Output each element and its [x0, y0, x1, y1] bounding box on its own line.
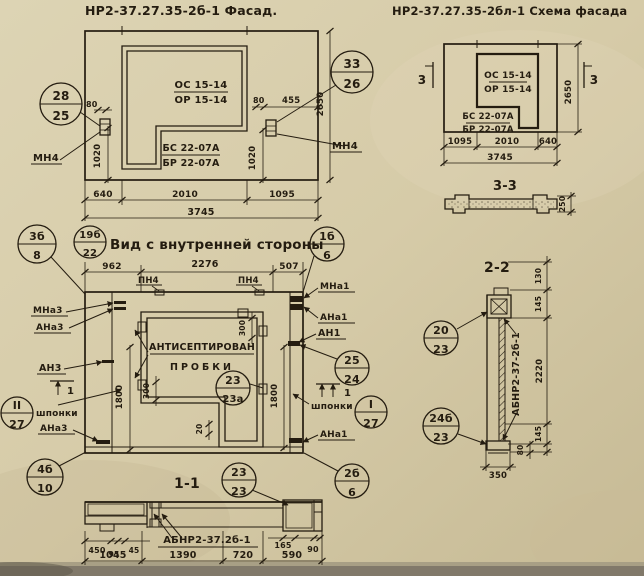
dim-2276: 2276 — [191, 259, 218, 270]
section-mark-1: 1 — [344, 388, 351, 399]
section-mark-3: 3 — [590, 73, 599, 87]
label-text: АНа3 — [40, 424, 68, 434]
dim-130: 130 — [534, 268, 543, 284]
section-mark-1: 1 — [67, 386, 74, 397]
facade-title: НР2-37.27.35-2б-1 Фасад. — [85, 3, 277, 18]
dim-1800-right: 1800 — [270, 384, 280, 408]
dim-962: 962 — [102, 262, 121, 272]
note-line1: АНТИСЕПТИРОВАН — [149, 342, 255, 353]
dim-2010: 2010 — [495, 137, 519, 147]
scheme-title: НР2-37.27.35-2бл-1 Схема фасада — [392, 4, 627, 18]
label-or: ОР 15-14 — [484, 85, 532, 95]
dim-507: 507 — [279, 262, 298, 272]
label-bs: БС 22-07А — [162, 143, 220, 154]
label-mn4-right: МН4 — [332, 141, 358, 152]
callout-top: 1б — [319, 230, 335, 243]
dim-2650-facade: 2650 — [316, 92, 326, 116]
inner-view-title: Вид с внутренней стороны — [110, 237, 324, 253]
dim-20: 20 — [195, 424, 204, 435]
callout-bottom: 10 — [37, 482, 53, 495]
label-br: БР 22-07А — [462, 125, 513, 135]
dim-720: 720 — [233, 550, 254, 561]
callout-top: 3б — [29, 230, 45, 243]
drawing-canvas: НР2-37.27.35-2б-1 Фасад. ОС 15-14 ОР 15-… — [0, 0, 644, 576]
label-text: МНа1 — [320, 282, 350, 292]
dim-1390: 1390 — [169, 550, 196, 561]
dim-640: 640 — [93, 190, 112, 200]
label-br: БР 22-07А — [162, 158, 219, 169]
callout-top: 4б — [37, 463, 53, 476]
dim-1800-left: 1800 — [115, 385, 125, 409]
label-text: АНа1 — [320, 430, 348, 440]
label-text: шпонки — [311, 402, 353, 412]
dim-2220: 2220 — [535, 359, 545, 383]
callout-bottom: 6 — [323, 249, 331, 262]
dim-2010: 2010 — [172, 190, 198, 200]
dim-1020-left: 1020 — [93, 144, 103, 168]
callout-bottom: 23 — [433, 343, 449, 356]
callout-bottom: 22 — [83, 248, 97, 259]
dim-80-right: 80 — [253, 96, 265, 105]
callout-top: II — [13, 399, 22, 412]
callout-top: 20 — [433, 324, 449, 337]
label-text: шпонки — [36, 409, 78, 419]
dim-145-bot: 145 — [534, 426, 543, 442]
callout-bottom: 26 — [343, 77, 360, 91]
callout-top: I — [369, 398, 373, 411]
dim-350: 350 — [489, 471, 507, 481]
dim-45: 45 — [129, 546, 140, 555]
label-text: АНа3 — [36, 323, 64, 333]
note-line2: ПРОБКИ — [170, 362, 234, 373]
dim-250: 250 — [558, 196, 567, 212]
callout-bottom: 24 — [344, 373, 360, 386]
dim-590: 590 — [282, 550, 303, 561]
callout-bottom: 23 — [433, 431, 449, 444]
callout-top: 23 — [231, 466, 247, 479]
label-abnr: АБНР2-37.2б-1 — [163, 534, 251, 546]
dim-300-top: 300 — [238, 320, 247, 336]
dim-145-top: 145 — [534, 296, 543, 312]
callout-bottom: 8 — [33, 249, 41, 262]
dim-1095: 1095 — [448, 137, 472, 147]
dim-80-left: 80 — [86, 100, 98, 109]
callout-top: 23 — [225, 374, 241, 387]
scheme-opening-label-bottom: БС 22-07А БР 22-07А — [462, 112, 513, 135]
callout-bottom: 27 — [363, 417, 379, 430]
dim-1020-right: 1020 — [248, 146, 258, 170]
dim-3745: 3745 — [487, 153, 513, 163]
callout-top: 2б — [344, 467, 360, 480]
technical-drawing-sheet: НР2-37.27.35-2б-1 Фасад. ОС 15-14 ОР 15-… — [0, 0, 644, 576]
callout-bottom: 6 — [348, 486, 356, 499]
callout-top: 33 — [343, 57, 360, 71]
section-1-1-title: 1-1 — [174, 476, 200, 492]
callout-top: 19б — [79, 229, 101, 241]
label-os: ОС 15-14 — [484, 71, 532, 81]
dim-455: 455 — [282, 96, 300, 106]
label-text: АНа1 — [320, 313, 348, 323]
dim-2650-scheme: 2650 — [564, 80, 574, 104]
section-mark-3: 3 — [418, 73, 427, 87]
label-bs: БС 22-07А — [462, 112, 513, 122]
callout-bottom: 23а — [222, 394, 243, 405]
dim-640: 640 — [539, 137, 557, 147]
callout-top: 25 — [344, 354, 360, 367]
dim-3745: 3745 — [187, 207, 214, 218]
label-text: АН3 — [39, 363, 62, 374]
dim-1045: 1045 — [99, 550, 126, 561]
label-abnr-vertical: АБНР2-37-2б-1 — [511, 332, 522, 416]
dim-300-left: 300 — [142, 383, 151, 399]
callout-bottom: 23 — [231, 485, 247, 498]
callout-top: 24б — [429, 412, 453, 425]
dim-1095: 1095 — [269, 190, 295, 200]
section-2-2-title: 2-2 — [484, 260, 510, 276]
label-mn4-left: МН4 — [33, 153, 59, 164]
callout-bottom: 25 — [52, 109, 69, 123]
label-text: АН1 — [318, 328, 341, 339]
section-3-3-title: 3-3 — [493, 179, 517, 194]
label-os: ОС 15-14 — [175, 80, 228, 91]
dim-90: 90 — [307, 545, 319, 554]
dim-80: 80 — [516, 445, 525, 456]
callout-19b-22: 19б 22 — [74, 226, 106, 259]
label-text: МНа3 — [33, 306, 63, 316]
dim-165: 165 — [274, 541, 292, 550]
label-or: ОР 15-14 — [175, 95, 228, 106]
callout-top: 28 — [52, 89, 69, 103]
callout-bottom: 27 — [9, 418, 25, 431]
